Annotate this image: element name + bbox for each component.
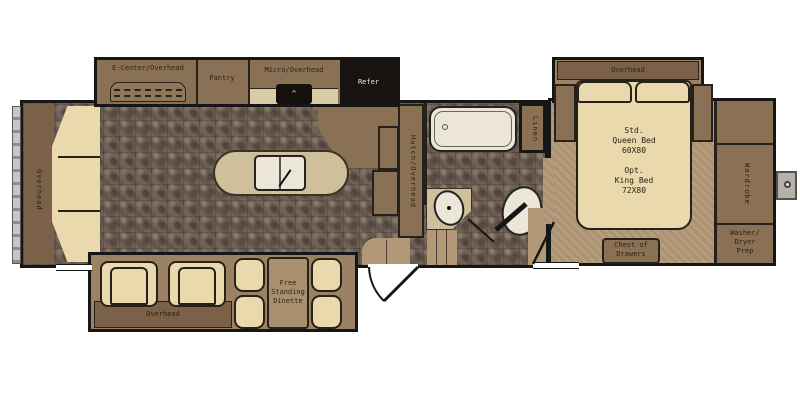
entry-pad-divider xyxy=(386,240,387,265)
step-well-opening xyxy=(533,262,579,269)
living-overhead-label: Overhead xyxy=(94,310,232,319)
pantry-label: Pantry xyxy=(196,74,248,83)
cabinet-divider xyxy=(717,223,773,225)
hutch-overhead-label: Hutch/Overhead xyxy=(405,112,417,232)
rear-sofa xyxy=(52,106,100,262)
linen-label: Linen xyxy=(527,110,539,148)
bedroom-doorway-opening xyxy=(543,158,554,224)
cabinet-divider xyxy=(717,143,773,145)
fireplace-dashes xyxy=(114,89,182,97)
sofa-cushion-divider xyxy=(58,210,100,212)
step-well-opening xyxy=(56,264,92,271)
floorplan-canvas: Overhead E-Center/Overhead Pantry Micro/… xyxy=(0,0,800,400)
dinette-chair xyxy=(311,295,342,329)
opt-bed-label: Opt. King Bed 72X80 xyxy=(576,166,692,196)
entry-door-arc xyxy=(369,267,384,301)
bath-wall xyxy=(424,103,427,205)
rear-slide-rail xyxy=(12,106,21,264)
hutch-step xyxy=(372,170,399,216)
pillow-left xyxy=(577,81,632,103)
washer-dryer-prep-label: Washer/ Dryer Prep xyxy=(717,229,773,255)
wardrobe-label: Wardrobe xyxy=(739,152,751,216)
dinette-chair xyxy=(234,258,265,292)
bath-steps xyxy=(427,230,457,265)
entry-door-opening xyxy=(368,264,418,271)
std-bed-label: Std. Queen Bed 60X80 xyxy=(576,126,692,156)
stove-icon: ^ xyxy=(276,84,312,104)
e-center-label: E-Center/Overhead xyxy=(100,64,196,73)
nightstand-right xyxy=(692,84,713,142)
tub-drain-icon xyxy=(442,124,448,130)
rear-overhead-label: Overhead xyxy=(31,140,43,240)
recliner-seat-cushion xyxy=(110,267,148,305)
chest-label: Chest of Drawers xyxy=(602,241,660,259)
dinette-chair xyxy=(234,295,265,329)
bedroom-overhead-label: Overhead xyxy=(557,66,699,75)
recliner-seat-cushion xyxy=(178,267,216,305)
step-line xyxy=(446,230,447,265)
sofa-cushion-divider xyxy=(58,156,100,158)
kingpin-circle-icon xyxy=(784,181,791,188)
vanity-faucet-icon xyxy=(447,206,451,210)
entry-door-leaf xyxy=(384,267,418,301)
refer-label: Refer xyxy=(340,78,397,87)
dinette-label: Free Standing Dinette xyxy=(262,279,314,305)
nightstand-left xyxy=(554,84,576,142)
hutch-step xyxy=(378,126,399,170)
pillow-right xyxy=(635,81,690,103)
dinette-chair xyxy=(311,258,342,292)
step-line xyxy=(436,230,437,265)
micro-overhead-label: Micro/Overhead xyxy=(250,66,338,75)
